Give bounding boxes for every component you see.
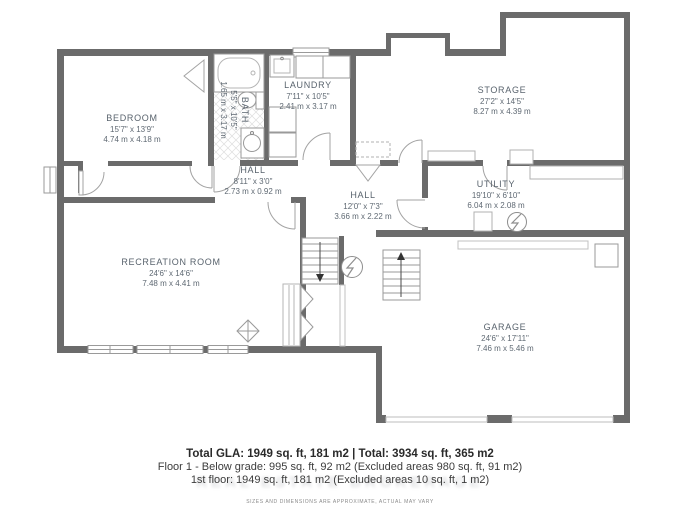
stairs-up (383, 250, 420, 300)
room-label-garage: GARAGE 24'6" x 17'11" 7.46 m x 5.46 m (476, 322, 533, 354)
storage-shelf-dashed (356, 142, 390, 157)
water-heater-icon (474, 212, 492, 231)
hall-double-door-icon (356, 165, 380, 181)
dryer-icon (323, 56, 350, 78)
disclaimer-text: SIZES AND DIMENSIONS ARE APPROXIMATE, AC… (0, 499, 680, 505)
garage-step (458, 241, 588, 249)
hall-electrical-panel-icon (342, 257, 363, 278)
fireplace-icon (237, 320, 259, 342)
garage-cabinet (595, 244, 618, 267)
room-label-hall-2: HALL 12'0" x 7'3" 3.66 m x 2.22 m (334, 190, 391, 222)
utility-counter (530, 166, 623, 179)
utility-side-door-arc (397, 200, 425, 228)
floor-area-line-2: 1st floor: 1949 sq. ft, 181 m2 (Excluded… (0, 474, 680, 486)
room-label-hall-1: HALL 8'11" x 3'0" 2.73 m x 0.92 m (224, 165, 281, 197)
storage-shelf-1 (428, 151, 475, 161)
stair-railing (340, 285, 345, 346)
rec-room-window-3 (208, 346, 248, 354)
chimney (283, 284, 300, 346)
room-label-bath: BATH 5'5" x 10'5" 1.65 m x 3.17 m (218, 81, 250, 138)
rec-room-window-2 (137, 346, 203, 354)
room-label-recreation-room: RECREATION ROOM 24'6" x 14'6" 7.48 m x 4… (121, 257, 220, 289)
room-label-utility: UTILITY 19'10" x 6'10" 6.04 m x 2.08 m (467, 179, 524, 211)
total-gla-line: Total GLA: 1949 sq. ft, 181 m2 | Total: … (0, 448, 680, 460)
room-label-bedroom: BEDROOM 15'7" x 13'9" 4.74 m x 4.18 m (103, 113, 160, 145)
floor-plan-page: BEDROOM 15'7" x 13'9" 4.74 m x 4.18 m BA… (0, 0, 680, 510)
area-summary: Total GLA: 1949 sq. ft, 181 m2 | Total: … (0, 448, 680, 486)
rec-room-door-arc (268, 202, 295, 229)
closet-bay-window (44, 167, 56, 193)
floor-plan-drawing: BEDROOM 15'7" x 13'9" 4.74 m x 4.18 m BA… (0, 0, 680, 445)
closet-door-arc (79, 171, 104, 195)
rec-room-features (237, 284, 313, 346)
storage-shelf-2 (510, 150, 533, 164)
stairs-down (302, 238, 338, 284)
laundry-cabinet-2 (269, 133, 296, 157)
washer-icon (296, 56, 323, 78)
room-label-storage: STORAGE 27'2" x 14'5" 8.27 m x 4.39 m (473, 85, 530, 117)
bedroom-fold-door-icon (184, 60, 204, 92)
garage-features (458, 241, 618, 267)
laundry-door-arc (303, 133, 330, 160)
room-label-laundry: LAUNDRY 7'11" x 10'5" 2.41 m x 3.17 m (279, 80, 336, 112)
electrical-panel-icon (508, 213, 527, 232)
bedroom-door-arc (190, 166, 212, 188)
laundry-sink-icon (270, 55, 294, 77)
rec-room-window-1 (88, 346, 133, 354)
floor-area-line-1: Floor 1 - Below grade: 995 sq. ft, 92 m2… (0, 461, 680, 473)
